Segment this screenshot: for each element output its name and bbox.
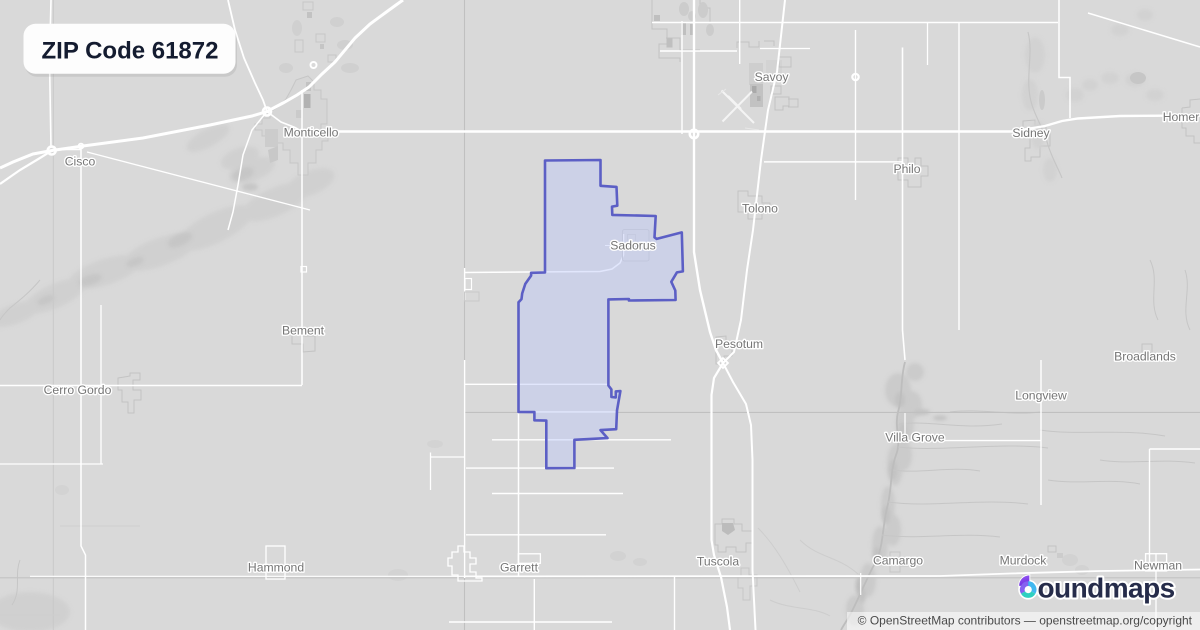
svg-text:Savoy: Savoy: [755, 70, 790, 84]
svg-text:Murdock: Murdock: [1000, 554, 1048, 568]
svg-text:© OpenStreetMap contributors —: © OpenStreetMap contributors — openstree…: [858, 614, 1193, 628]
svg-text:Villa Grove: Villa Grove: [885, 431, 945, 445]
svg-text:ZIP Code 61872: ZIP Code 61872: [42, 37, 219, 64]
svg-text:Cerro Gordo: Cerro Gordo: [44, 383, 112, 397]
svg-text:Hammond: Hammond: [248, 561, 304, 575]
svg-text:Philo: Philo: [893, 162, 920, 176]
svg-text:Pesotum: Pesotum: [715, 337, 763, 351]
svg-text:Newman: Newman: [1134, 559, 1182, 573]
svg-text:Homer: Homer: [1163, 110, 1200, 124]
svg-text:Longview: Longview: [1015, 389, 1067, 403]
svg-text:Monticello: Monticello: [284, 126, 339, 140]
svg-text:Sadorus: Sadorus: [610, 239, 655, 253]
svg-text:Camargo: Camargo: [873, 554, 923, 568]
svg-text:oundmaps: oundmaps: [1038, 572, 1175, 603]
svg-text:Cisco: Cisco: [65, 155, 96, 169]
svg-text:Garrett: Garrett: [500, 561, 539, 575]
svg-text:Tolono: Tolono: [742, 202, 778, 216]
svg-text:Broadlands: Broadlands: [1114, 350, 1176, 364]
svg-text:Tuscola: Tuscola: [697, 555, 739, 569]
svg-text:Sidney: Sidney: [1012, 126, 1050, 140]
svg-text:Bement: Bement: [282, 324, 325, 338]
